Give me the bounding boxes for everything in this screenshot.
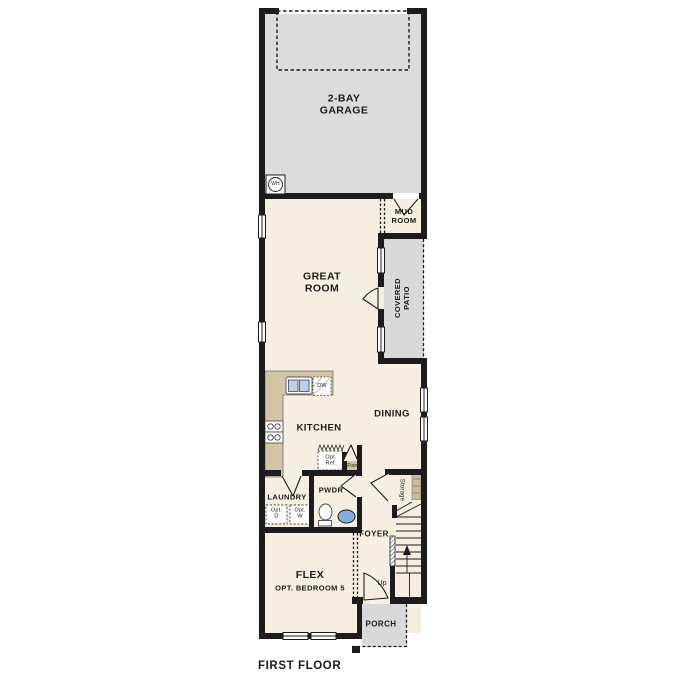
toilet [319, 504, 332, 520]
laundry-label: LAUNDRY [267, 494, 306, 503]
mud-room-label: MUDROOM [392, 208, 417, 226]
covered-patio-label: COVEREDPATIO [394, 278, 412, 318]
dining-label: DINING [374, 408, 410, 419]
foyer-label: FOYER [359, 529, 389, 538]
opt-ref-label: Opt.Ref. [325, 455, 336, 468]
flex-label: FLEX [296, 569, 324, 581]
floor-plan: 2-BAYGARAGE MUDROOM GREATROOM COVEREDPAT… [0, 0, 687, 687]
stair-railing [390, 536, 395, 566]
powder-sink [338, 510, 355, 523]
opt-washer-label: Opt.W [294, 508, 305, 521]
powder-label: PWDR [319, 487, 344, 496]
porch-label: PORCH [366, 619, 397, 628]
water-heater-label: WH [271, 182, 280, 188]
kitchen-label: KITCHEN [296, 422, 341, 433]
pantry-label: Pan [347, 463, 357, 469]
flex-opt-bedroom-label: OPT. BEDROOM 5 [275, 585, 345, 594]
storage-label: Storage [397, 479, 404, 501]
stairs-up-label: Up [377, 580, 386, 588]
dishwasher-label: DW [317, 383, 327, 389]
garage-label: 2-BAYGARAGE [320, 93, 369, 118]
great-room-label: GREATROOM [303, 271, 341, 296]
plan-title: FIRST FLOOR [258, 660, 341, 674]
storage-fixtures [412, 473, 421, 500]
opt-dryer-label: Opt.D [271, 508, 282, 521]
